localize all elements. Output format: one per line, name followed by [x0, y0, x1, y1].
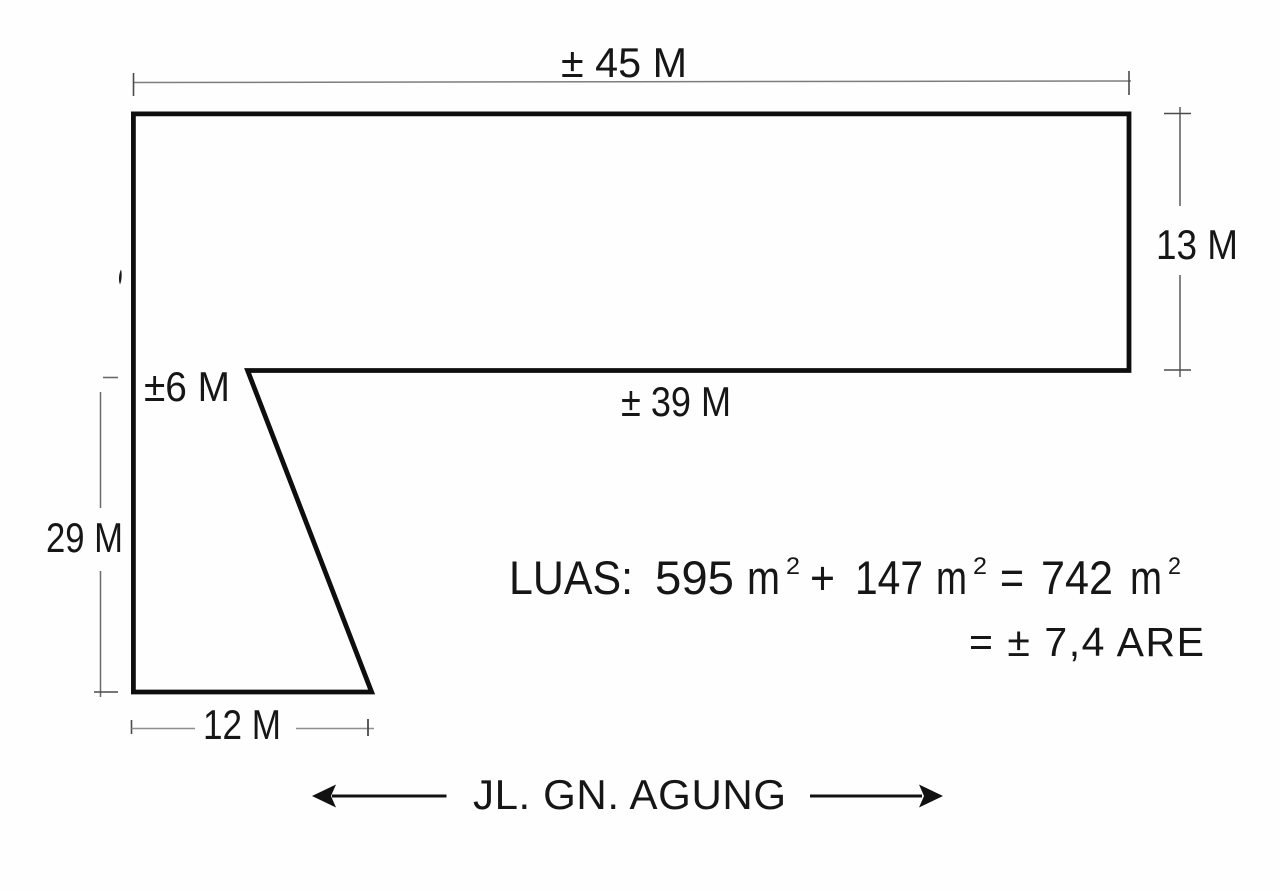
svg-text:± 45 M: ± 45 M — [561, 39, 687, 86]
svg-text:2: 2 — [1168, 553, 1181, 580]
svg-text:595: 595 — [655, 551, 734, 604]
svg-text:= ± 7,4 ARE: = ± 7,4 ARE — [969, 619, 1204, 665]
svg-text:12 M: 12 M — [203, 701, 281, 748]
svg-text:29 M: 29 M — [46, 514, 123, 561]
svg-text:2: 2 — [786, 553, 800, 580]
svg-text:±6 M: ±6 M — [144, 363, 230, 410]
svg-text:JL. GN. AGUNG: JL. GN. AGUNG — [473, 771, 786, 818]
svg-text:m: m — [747, 551, 780, 604]
svg-text:2: 2 — [973, 553, 987, 580]
svg-text:+: + — [810, 551, 835, 604]
svg-text:=: = — [1000, 551, 1024, 604]
svg-text:742: 742 — [1041, 551, 1113, 604]
svg-text:147: 147 — [855, 551, 923, 604]
svg-text:13 M: 13 M — [1156, 221, 1238, 268]
svg-text:± 39 M: ± 39 M — [621, 378, 731, 425]
svg-text:LUAS:: LUAS: — [509, 551, 633, 604]
svg-text:m: m — [936, 551, 967, 604]
svg-text:m: m — [1130, 551, 1162, 604]
